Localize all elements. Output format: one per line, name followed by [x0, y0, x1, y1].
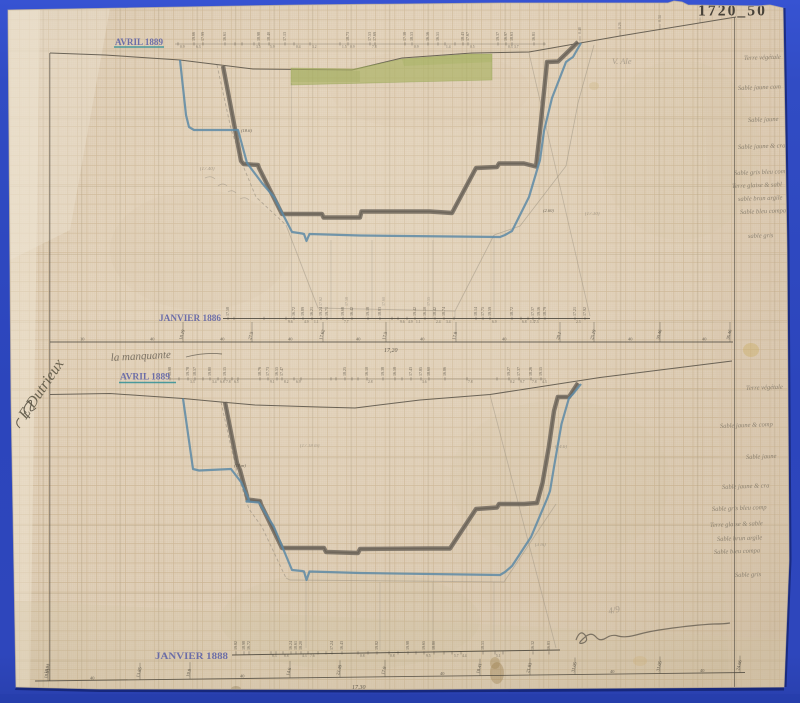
svg-text:19.65: 19.65	[421, 641, 426, 650]
svg-text:18.80: 18.80	[431, 641, 436, 650]
svg-text:0.34: 0.34	[658, 15, 662, 22]
svg-text:19.82: 19.82	[374, 641, 379, 650]
svg-text:3.6: 3.6	[422, 380, 427, 384]
svg-text:18.79: 18.79	[542, 307, 547, 316]
svg-text:(17.40): (17.40)	[200, 167, 215, 172]
svg-text:18.20: 18.20	[298, 641, 303, 650]
svg-text:Terre végétale: Terre végétale	[746, 384, 783, 392]
svg-text:7.8: 7.8	[468, 380, 473, 384]
svg-text:17.62: 17.62	[318, 297, 323, 306]
svg-text:17.37: 17.37	[530, 307, 535, 316]
svg-text:16.72: 16.72	[246, 641, 251, 650]
svg-text:16.86: 16.86	[442, 367, 447, 376]
svg-text:1.1: 1.1	[314, 320, 319, 324]
svg-text:18.51: 18.51	[480, 641, 485, 650]
svg-text:3.7: 3.7	[514, 45, 519, 49]
svg-text:1.1: 1.1	[416, 320, 421, 324]
svg-text:16.10: 16.10	[422, 307, 427, 316]
svg-text:17.58: 17.58	[225, 307, 230, 316]
svg-text:17.21: 17.21	[572, 307, 577, 316]
svg-text:0.26: 0.26	[618, 22, 622, 29]
svg-text:18.14: 18.14	[473, 307, 478, 316]
svg-text:18.26: 18.26	[528, 367, 533, 376]
svg-text:19.82: 19.82	[233, 641, 238, 650]
svg-text:3.5: 3.5	[256, 45, 261, 49]
svg-text:19.15: 19.15	[222, 367, 227, 376]
svg-text:16.43: 16.43	[339, 641, 344, 650]
svg-text:19.38: 19.38	[380, 367, 385, 376]
svg-text:17.13: 17.13	[282, 32, 287, 41]
svg-text:5.1: 5.1	[496, 654, 501, 658]
svg-text:9.5: 9.5	[426, 654, 431, 658]
svg-text:6.9: 6.9	[296, 380, 301, 384]
svg-text:Sable jaune: Sable jaune	[746, 453, 777, 461]
svg-text:2.4: 2.4	[436, 320, 441, 324]
svg-text:4.4: 4.4	[462, 654, 467, 658]
svg-text:18.83: 18.83	[377, 307, 382, 316]
svg-text:18.63: 18.63	[509, 32, 514, 41]
svg-text:17.38: 17.38	[402, 32, 407, 41]
svg-text:17.85: 17.85	[418, 367, 423, 376]
svg-text:7.7: 7.7	[344, 320, 349, 324]
svg-text:7.8: 7.8	[532, 380, 537, 384]
svg-text:19.80: 19.80	[207, 367, 212, 376]
svg-text:17.47: 17.47	[279, 367, 284, 376]
svg-text:3.4: 3.4	[446, 320, 451, 324]
svg-text:AVRIL 1889: AVRIL 1889	[115, 37, 163, 47]
svg-text:17.24: 17.24	[329, 641, 334, 650]
svg-text:19.27: 19.27	[506, 367, 511, 376]
svg-text:16.58: 16.58	[392, 367, 397, 376]
svg-text:17,20: 17,20	[384, 348, 398, 354]
svg-text:19.66: 19.66	[191, 32, 196, 41]
svg-text:19.68: 19.68	[340, 307, 345, 316]
svg-text:(17.10): (17.10)	[585, 212, 600, 217]
svg-text:5.9: 5.9	[270, 45, 275, 49]
svg-text:19.78: 19.78	[185, 367, 190, 376]
svg-text:3.4: 3.4	[212, 380, 217, 384]
svg-text:18.40: 18.40	[266, 32, 271, 41]
svg-text:17.37: 17.37	[516, 367, 521, 376]
svg-text:8.8: 8.8	[284, 654, 289, 658]
svg-text:16.81: 16.81	[531, 32, 536, 41]
svg-text:19.18: 19.18	[365, 307, 370, 316]
svg-text:19.16: 19.16	[536, 307, 541, 316]
svg-text:18.76: 18.76	[257, 367, 262, 376]
svg-text:Sable jaune: Sable jaune	[748, 116, 779, 124]
svg-text:2.3: 2.3	[576, 320, 581, 324]
svg-text:16.97: 16.97	[503, 32, 508, 41]
svg-text:17.75: 17.75	[480, 307, 485, 316]
svg-text:17.55: 17.55	[426, 297, 431, 306]
svg-text:6.8: 6.8	[220, 380, 225, 384]
svg-text:0.3: 0.3	[508, 45, 513, 49]
svg-text:1.5: 1.5	[342, 45, 347, 49]
svg-text:17.99: 17.99	[200, 32, 205, 41]
svg-text:4.3: 4.3	[302, 654, 307, 658]
svg-text:0.9: 0.9	[350, 45, 355, 49]
svg-text:19.15: 19.15	[538, 367, 543, 376]
svg-text:0.9: 0.9	[180, 45, 185, 49]
svg-text:19.37: 19.37	[495, 32, 500, 41]
svg-text:17.43: 17.43	[408, 367, 413, 376]
svg-text:18.53: 18.53	[409, 32, 414, 41]
svg-text:9.6: 9.6	[400, 320, 405, 324]
svg-text:0.8: 0.8	[390, 654, 395, 658]
svg-text:7.6: 7.6	[310, 654, 315, 658]
svg-text:16.21: 16.21	[309, 307, 314, 316]
svg-text:0.2: 0.2	[510, 380, 515, 384]
svg-text:18.57: 18.57	[192, 367, 197, 376]
svg-text:9.6: 9.6	[288, 320, 293, 324]
svg-text:18.25: 18.25	[342, 367, 347, 376]
svg-text:(3 m): (3 m)	[535, 543, 546, 548]
svg-text:19.42: 19.42	[412, 307, 417, 316]
svg-text:17.60: 17.60	[381, 297, 386, 306]
svg-text:7.3: 7.3	[534, 320, 539, 324]
svg-text:17.67: 17.67	[465, 32, 470, 41]
svg-text:1.4: 1.4	[446, 45, 451, 49]
svg-text:(18.6): (18.6)	[241, 128, 252, 133]
svg-text:17.73: 17.73	[265, 367, 270, 376]
svg-text:JANVIER 1888: JANVIER 1888	[155, 652, 228, 662]
svg-text:0.48: 0.48	[578, 27, 582, 34]
svg-text:6.5: 6.5	[234, 380, 239, 384]
svg-text:sable gris: sable gris	[748, 232, 774, 240]
svg-text:5.7: 5.7	[454, 654, 459, 658]
svg-text:17.58: 17.58	[344, 297, 349, 306]
svg-text:19.89: 19.89	[300, 307, 305, 316]
svg-text:2.8: 2.8	[368, 380, 373, 384]
svg-text:4.3: 4.3	[542, 380, 547, 384]
svg-text:18.74: 18.74	[441, 307, 446, 316]
svg-text:16.83: 16.83	[546, 641, 551, 650]
svg-text:16.56: 16.56	[425, 32, 430, 41]
svg-text:V. Ale: V. Ale	[612, 56, 632, 66]
svg-text:18.60: 18.60	[426, 367, 431, 376]
svg-text:0.5: 0.5	[470, 45, 475, 49]
svg-text:18.42: 18.42	[432, 307, 437, 316]
svg-text:19.98: 19.98	[405, 641, 410, 650]
svg-text:6.9: 6.9	[492, 320, 497, 324]
svg-text:JANVIER 1886: JANVIER 1886	[159, 313, 222, 323]
svg-text:17.92: 17.92	[582, 307, 587, 316]
svg-text:3.3: 3.3	[190, 380, 195, 384]
svg-text:Terre végétale: Terre végétale	[744, 54, 781, 62]
svg-text:4.9: 4.9	[408, 320, 413, 324]
svg-text:17.69: 17.69	[372, 32, 377, 41]
svg-text:0.9: 0.9	[414, 45, 419, 49]
svg-text:6.8: 6.8	[522, 320, 527, 324]
svg-text:19.24: 19.24	[318, 307, 323, 316]
svg-text:0.4: 0.4	[296, 45, 301, 49]
svg-text:16.10: 16.10	[364, 367, 369, 376]
svg-text:16.51: 16.51	[435, 32, 440, 41]
svg-text:18.72: 18.72	[509, 307, 514, 316]
svg-text:(19 m): (19 m)	[234, 463, 246, 468]
svg-text:18.73: 18.73	[345, 32, 350, 41]
svg-text:9.1: 9.1	[270, 380, 275, 384]
svg-text:8.3: 8.3	[272, 654, 277, 658]
svg-text:16.61: 16.61	[222, 32, 227, 41]
svg-text:19.59: 19.59	[487, 307, 492, 316]
svg-text:AVRIL 1889: AVRIL 1889	[120, 372, 171, 382]
svg-text:6.3: 6.3	[196, 45, 201, 49]
svg-text:16.42: 16.42	[349, 307, 354, 316]
svg-text:Sable gris: Sable gris	[735, 571, 762, 579]
svg-text:16.72: 16.72	[291, 307, 296, 316]
svg-text:16.32: 16.32	[530, 641, 535, 650]
svg-text:3.2: 3.2	[312, 45, 317, 49]
svg-text:(14.6): (14.6)	[555, 445, 567, 450]
svg-text:7.8: 7.8	[372, 45, 377, 49]
svg-text:9.7: 9.7	[520, 380, 525, 384]
svg-text:(17.18 m): (17.18 m)	[300, 444, 320, 449]
svg-text:(2.60): (2.60)	[543, 208, 554, 213]
svg-text:0.8: 0.8	[360, 654, 365, 658]
svg-text:18.98: 18.98	[256, 32, 261, 41]
svg-text:19.71: 19.71	[324, 307, 329, 316]
svg-text:8.2: 8.2	[284, 380, 289, 384]
svg-text:7.8: 7.8	[226, 380, 231, 384]
svg-text:4.9: 4.9	[304, 320, 309, 324]
